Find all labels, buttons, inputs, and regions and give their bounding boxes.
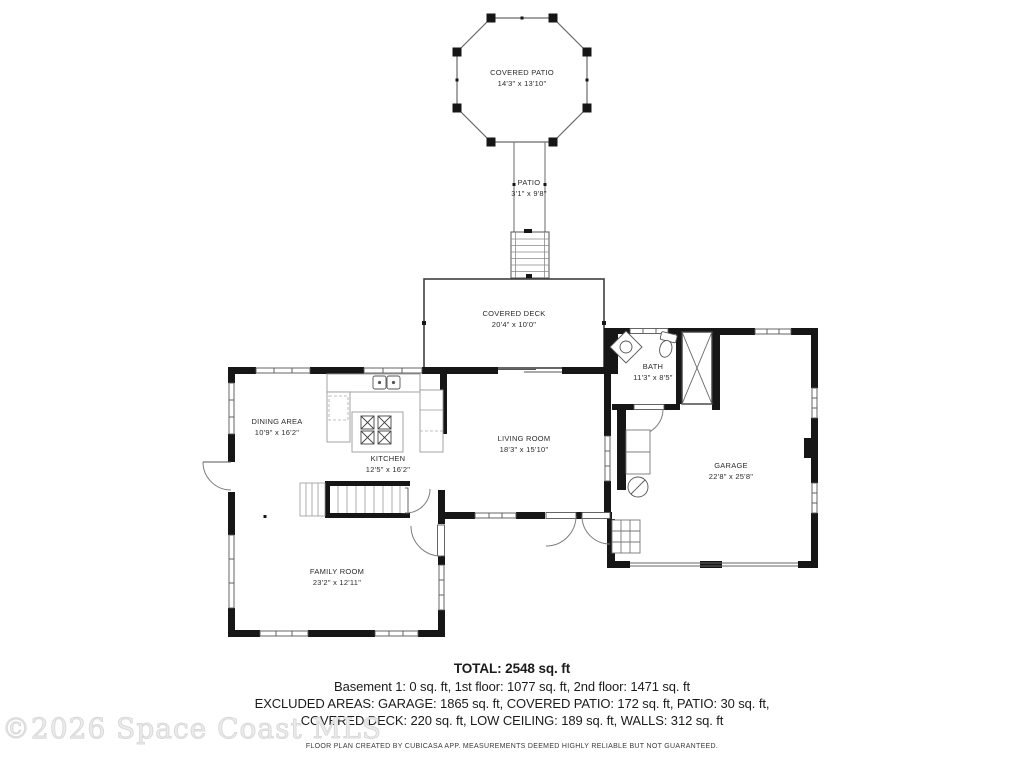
room-label-living-room: LIVING ROOM 18'3" x 15'10": [498, 433, 551, 455]
windows: [229, 329, 817, 637]
walls: [228, 328, 818, 637]
room-label-patio: PATIO 3'1" x 9'8": [511, 177, 547, 199]
garage-stairs: [612, 520, 640, 553]
stairs-to-deck: [511, 229, 549, 278]
room-label-kitchen: KITCHEN 12'5" x 16'2": [366, 453, 410, 475]
garage-fixtures: [626, 430, 650, 497]
floor-plan-canvas: [0, 0, 1024, 768]
summary-excluded-line1: EXCLUDED AREAS: GARAGE: 1865 sq. ft, COV…: [0, 695, 1024, 712]
room-label-covered-deck: COVERED DECK 20'4" x 10'0": [482, 308, 545, 330]
watermark-text: ©2026 Space Coast MLS: [2, 712, 382, 745]
summary-total: TOTAL: 2548 sq. ft: [0, 660, 1024, 677]
room-label-dining-area: DINING AREA 10'9" x 16'2": [251, 416, 302, 438]
water-heater-icon: [628, 477, 648, 497]
room-label-bath: BATH 11'3" x 8'5": [633, 361, 672, 383]
room-label-family-room: FAMILY ROOM 23'2" x 12'11": [310, 566, 364, 588]
summary-floors: Basement 1: 0 sq. ft, 1st floor: 1077 sq…: [0, 678, 1024, 695]
floor-plan-page: COVERED PATIO 14'3" x 13'10" PATIO 3'1" …: [0, 0, 1024, 768]
main-staircase: [300, 483, 405, 516]
room-label-covered-patio: COVERED PATIO 14'3" x 13'10": [490, 67, 554, 89]
toilet-icon: [656, 331, 677, 359]
shower-icon: [682, 332, 712, 404]
sliding-door: [498, 370, 562, 373]
kitchen-fixtures: [327, 374, 443, 452]
room-label-garage: GARAGE 22'8" x 25'8": [709, 460, 753, 482]
